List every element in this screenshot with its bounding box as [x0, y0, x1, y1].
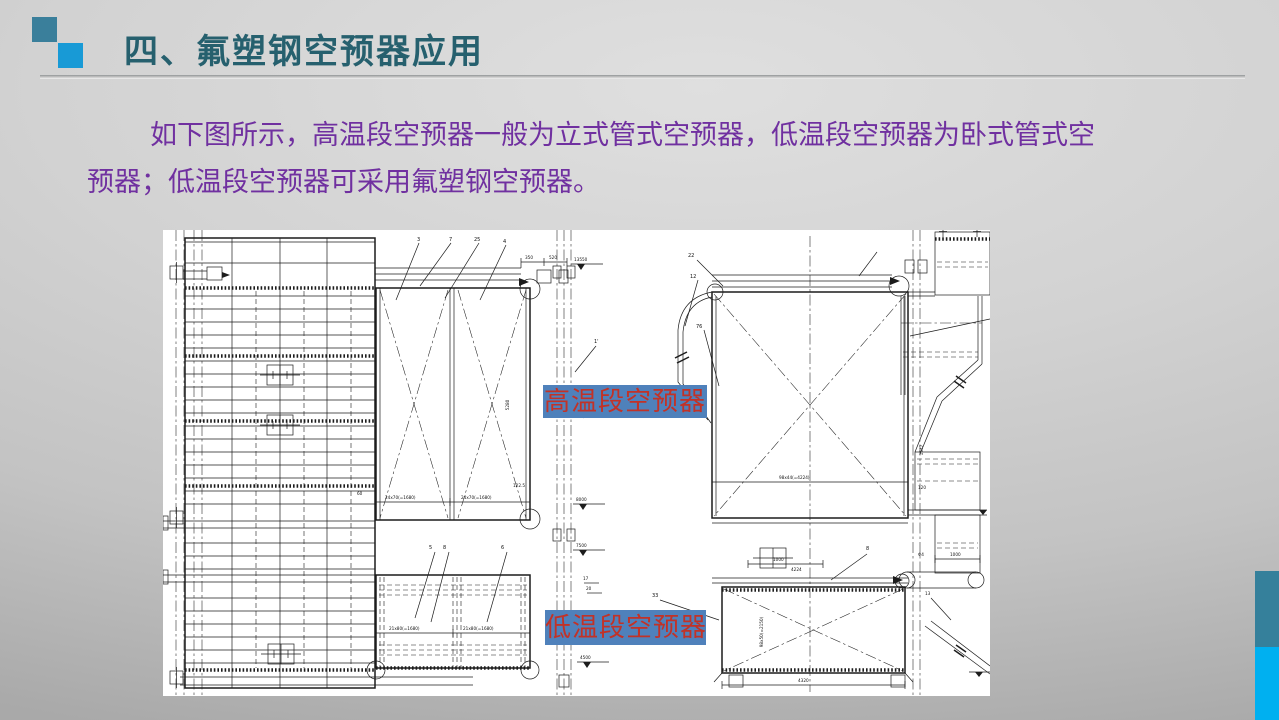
- dwg-text-n4: 4: [503, 239, 506, 245]
- dwg-text-e13550: 13550: [574, 257, 588, 262]
- dwg-text-e4500: 4500: [580, 655, 591, 660]
- dwg-text-d520: 520: [549, 255, 557, 260]
- high-temp-aph-label: 高温段空预器: [543, 385, 707, 418]
- dwg-text-d120: 120: [918, 485, 926, 490]
- dwg-text-n33: 33: [652, 593, 658, 599]
- dwg-text-n1p: 1': [594, 339, 599, 345]
- dwg-text-n76: 76: [696, 324, 702, 330]
- edge-bar-blue: [1255, 647, 1279, 720]
- drawing-figure: 3 7 25 4 350 520 13550 8000 7500 4500 1'…: [163, 230, 990, 696]
- dwg-text-d21b: 21x80(=1680): [463, 626, 494, 631]
- body-paragraph: 如下图所示，高温段空预器一般为立式管式空预器，低温段空预器为卧式管式空预器；低温…: [87, 112, 1107, 206]
- low-temp-aph-label: 低温段空预器: [545, 610, 706, 645]
- dwg-text-d4320: 4320: [798, 678, 809, 683]
- dwg-text-n22: 22: [688, 253, 694, 259]
- dwg-text-d1000a: 1000: [773, 557, 784, 562]
- dwg-text-n3: 3: [417, 237, 420, 243]
- dwg-text-n8p: 8: [866, 546, 869, 552]
- dwg-text-d5280: 5280: [505, 399, 510, 410]
- dwg-text-e8000: 8000: [576, 497, 587, 502]
- dwg-text-d24a: 24x70(=1680): [385, 495, 416, 500]
- slide: { "slide": { "title": "四、氟塑钢空预器应用", "par…: [0, 0, 1279, 720]
- dwg-text-d21a: 21x80(=1680): [389, 626, 420, 631]
- dwg-text-d4224: 4224: [791, 567, 802, 572]
- dwg-text-n12: 12: [690, 274, 696, 280]
- deco-square-dark: [32, 17, 57, 42]
- dwg-text-d98x50: 98x50(=2150): [759, 616, 764, 647]
- dwg-text-n25: 25: [474, 237, 480, 243]
- title-divider: [40, 75, 1245, 79]
- edge-bar-teal: [1255, 571, 1279, 647]
- page-title: 四、氟塑钢空预器应用: [124, 24, 484, 73]
- dwg-text-d1547: 1547: [919, 444, 924, 455]
- dwg-text-d122: 122.5: [513, 483, 525, 488]
- dwg-text-n8: 8: [443, 545, 446, 551]
- dwg-text-n20: 20: [586, 586, 592, 591]
- dwg-text-n17: 17: [583, 576, 589, 581]
- dwg-text-d350: 350: [525, 255, 533, 260]
- dwg-text-d60: 60: [357, 491, 363, 496]
- dwg-text-n6: 6: [501, 545, 504, 551]
- dwg-text-e7500: 7500: [576, 543, 587, 548]
- dwg-text-n5: 5: [429, 545, 432, 551]
- dwg-text-d98x44: 98x44(=4224): [779, 475, 810, 480]
- dwg-text-n13: 13: [925, 591, 931, 596]
- dwg-text-d24b: 24x70(=1680): [461, 495, 492, 500]
- dwg-text-d1000b: 1000: [950, 552, 961, 557]
- dwg-text-dphi: Φ4: [918, 552, 924, 557]
- dwg-text-n7: 7: [449, 237, 452, 243]
- deco-square-light: [58, 43, 83, 68]
